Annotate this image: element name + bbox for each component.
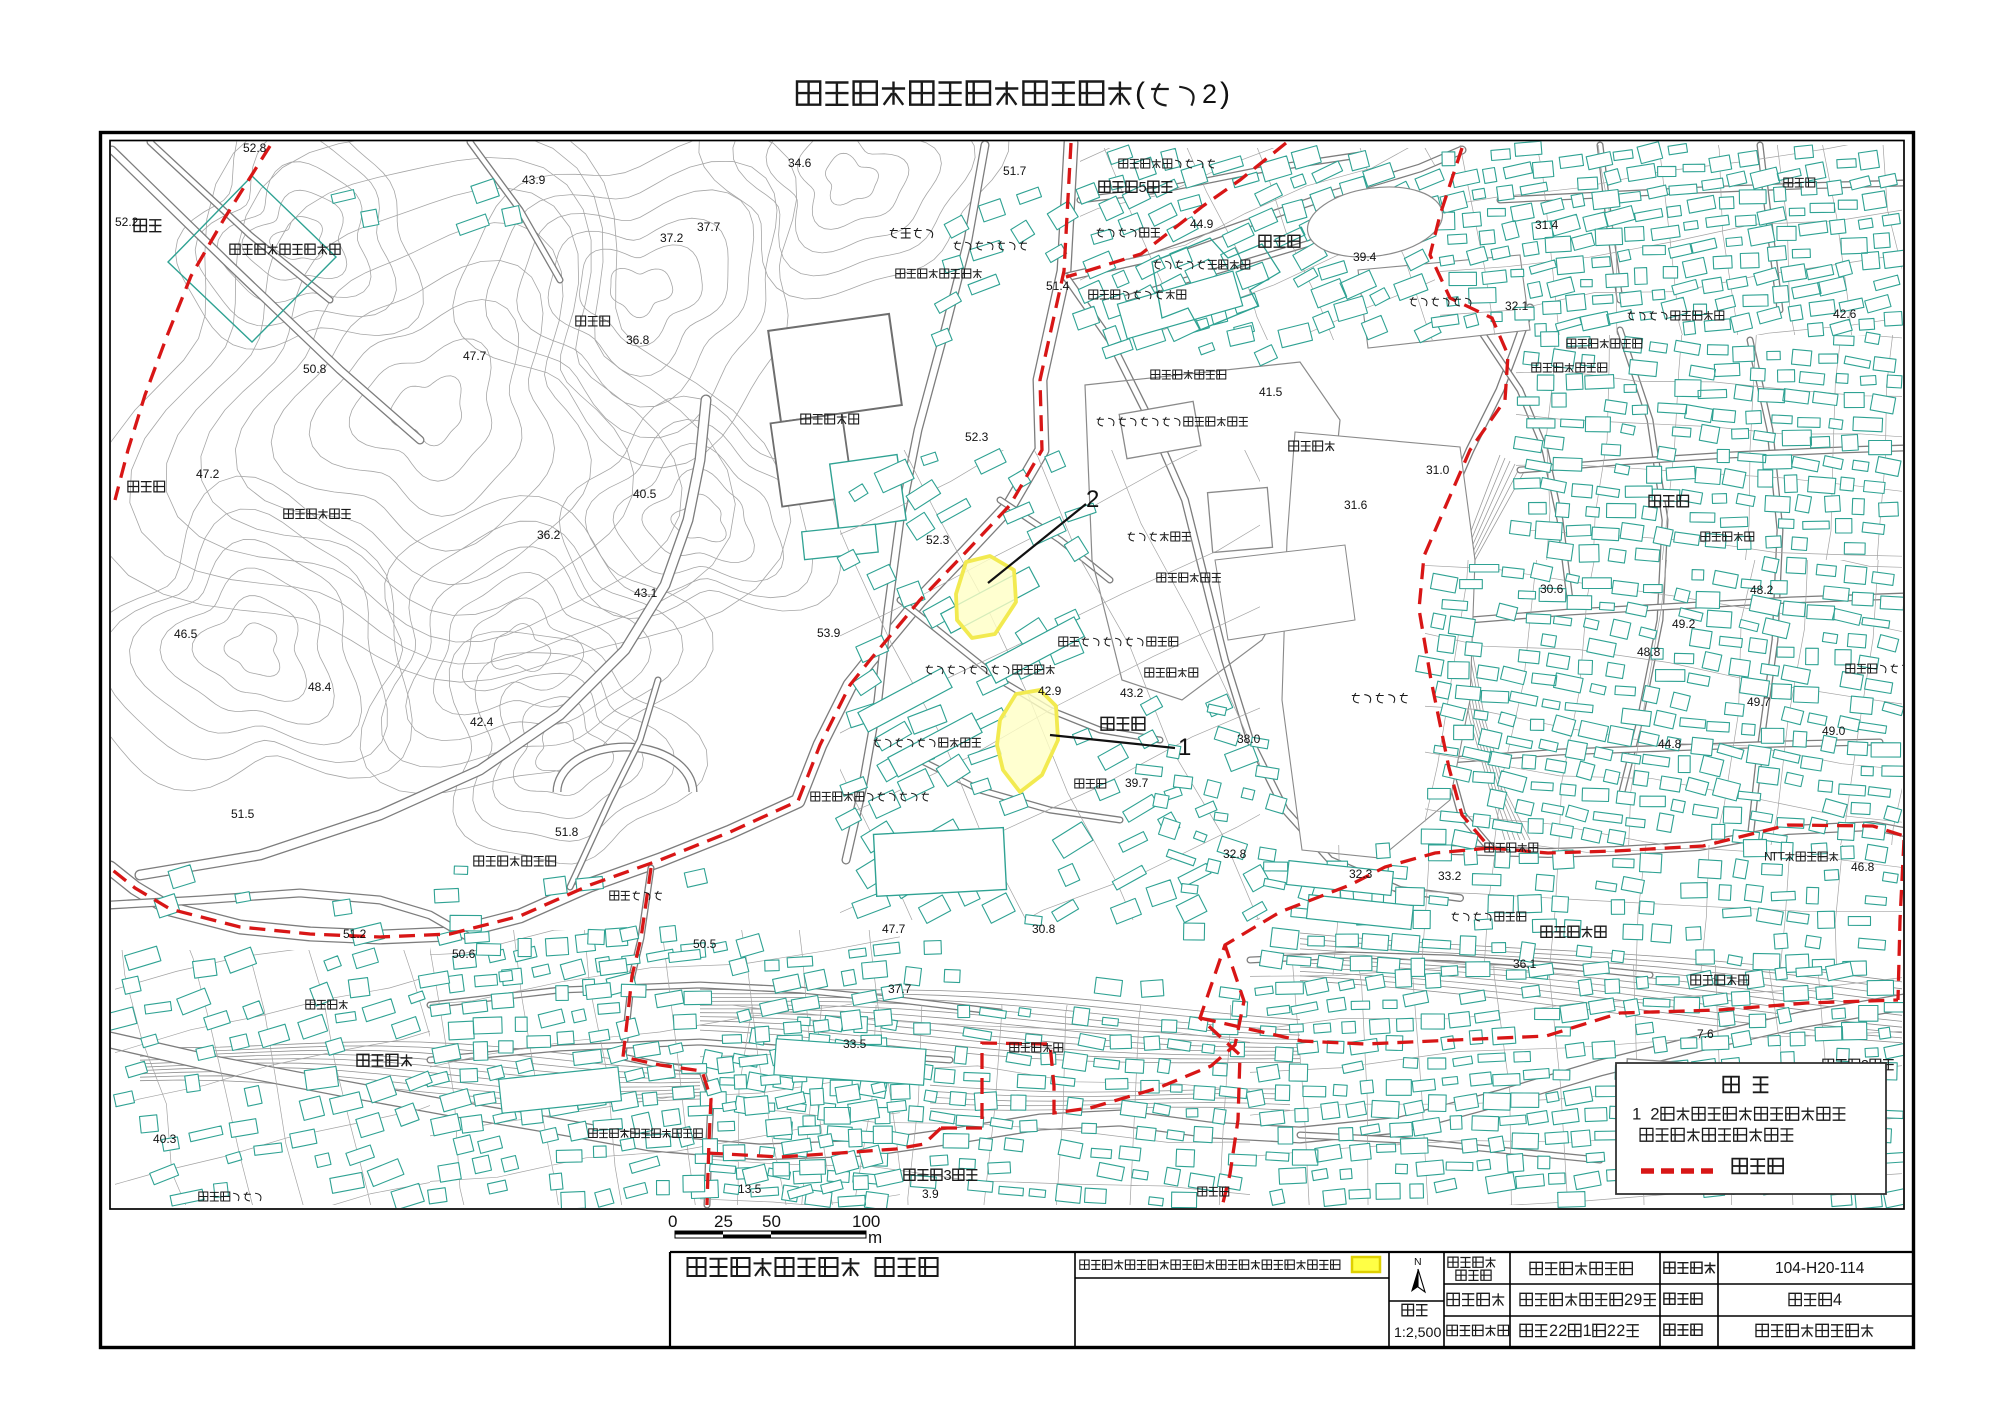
svg-text:49.2: 49.2 — [1672, 617, 1696, 631]
svg-text:3: 3 — [944, 1168, 952, 1184]
svg-text:4: 4 — [1833, 1291, 1842, 1309]
svg-text:25: 25 — [714, 1212, 733, 1231]
svg-text:2: 2 — [1549, 1322, 1558, 1340]
svg-text:1: 1 — [1632, 1105, 1641, 1124]
svg-text:33.5: 33.5 — [843, 1037, 867, 1051]
svg-text:37.7: 37.7 — [888, 982, 912, 996]
svg-text:52.8: 52.8 — [243, 141, 267, 155]
svg-text:44.8: 44.8 — [1658, 737, 1682, 751]
svg-text:41.5: 41.5 — [1259, 385, 1283, 399]
svg-text:38.0: 38.0 — [1237, 732, 1261, 746]
svg-text:36.8: 36.8 — [626, 333, 650, 347]
svg-text:0: 0 — [668, 1212, 677, 1231]
svg-text:50.8: 50.8 — [303, 362, 327, 376]
svg-text:2: 2 — [1650, 1105, 1659, 1124]
svg-text:30.8: 30.8 — [1032, 922, 1056, 936]
svg-text:1: 1 — [1178, 734, 1191, 761]
svg-text:31.4: 31.4 — [1535, 218, 1559, 232]
svg-text:(: ( — [1135, 77, 1145, 110]
svg-text:T: T — [1778, 850, 1785, 864]
svg-text:51.4: 51.4 — [1046, 279, 1070, 293]
svg-text:31.0: 31.0 — [1426, 463, 1450, 477]
svg-text:49.7: 49.7 — [1747, 695, 1771, 709]
svg-text:2: 2 — [1558, 1322, 1567, 1340]
svg-text:43.2: 43.2 — [1120, 686, 1144, 700]
svg-text:2: 2 — [1202, 79, 1217, 109]
svg-text:30.6: 30.6 — [1540, 582, 1564, 596]
svg-text:33.2: 33.2 — [1438, 869, 1462, 883]
svg-text:39.4: 39.4 — [1353, 250, 1377, 264]
svg-text:43.1: 43.1 — [634, 586, 658, 600]
svg-text:51.2: 51.2 — [343, 927, 367, 941]
svg-text:3.9: 3.9 — [922, 1187, 939, 1201]
svg-text:42.4: 42.4 — [470, 715, 494, 729]
svg-text:32.3: 32.3 — [1349, 867, 1373, 881]
svg-text:13.5: 13.5 — [738, 1182, 762, 1196]
svg-text:51.8: 51.8 — [555, 825, 579, 839]
svg-text:53.9: 53.9 — [817, 626, 841, 640]
svg-text:42.6: 42.6 — [1833, 307, 1857, 321]
svg-text:48.8: 48.8 — [1637, 645, 1661, 659]
svg-text:52.3: 52.3 — [965, 430, 989, 444]
svg-text:50.6: 50.6 — [452, 947, 476, 961]
svg-text:40.5: 40.5 — [633, 487, 657, 501]
svg-text:49.0: 49.0 — [1822, 724, 1846, 738]
svg-text:9: 9 — [1633, 1291, 1642, 1309]
svg-text:1:2,500: 1:2,500 — [1394, 1325, 1441, 1341]
svg-text:50.5: 50.5 — [693, 937, 717, 951]
svg-text:39.7: 39.7 — [1125, 776, 1149, 790]
svg-text:43.9: 43.9 — [522, 173, 546, 187]
svg-text:47.2: 47.2 — [196, 467, 220, 481]
svg-text:36.2: 36.2 — [537, 528, 561, 542]
svg-text:1: 1 — [1583, 1322, 1592, 1340]
svg-text:50: 50 — [762, 1212, 781, 1231]
svg-text:32.1: 32.1 — [1505, 299, 1529, 313]
svg-text:44.9: 44.9 — [1190, 217, 1214, 231]
svg-text:40.3: 40.3 — [153, 1132, 177, 1146]
svg-text:104-H20-114: 104-H20-114 — [1775, 1260, 1865, 1277]
svg-text:31.6: 31.6 — [1344, 498, 1368, 512]
svg-text:51.7: 51.7 — [1003, 164, 1027, 178]
svg-text:2: 2 — [1616, 1322, 1625, 1340]
svg-text:52.3: 52.3 — [926, 533, 950, 547]
svg-text:37.2: 37.2 — [660, 231, 684, 245]
svg-text:2: 2 — [1086, 486, 1099, 513]
svg-text:): ) — [1220, 77, 1230, 110]
svg-text:36.1: 36.1 — [1513, 957, 1537, 971]
svg-text:46.5: 46.5 — [174, 627, 198, 641]
svg-text:2: 2 — [1624, 1291, 1633, 1309]
svg-text:N: N — [1414, 1256, 1422, 1268]
svg-text:34.6: 34.6 — [788, 156, 812, 170]
svg-text:m: m — [868, 1228, 882, 1247]
svg-text:46.8: 46.8 — [1851, 860, 1875, 874]
svg-text:48.4: 48.4 — [308, 680, 332, 694]
svg-text:42.9: 42.9 — [1038, 684, 1062, 698]
svg-text:52.2: 52.2 — [115, 215, 139, 229]
svg-text:5: 5 — [1139, 180, 1147, 196]
svg-text:47.7: 47.7 — [463, 349, 487, 363]
svg-text:2: 2 — [1607, 1322, 1616, 1340]
svg-text:32.8: 32.8 — [1223, 847, 1247, 861]
svg-text:47.7: 47.7 — [882, 922, 906, 936]
svg-text:48.2: 48.2 — [1750, 583, 1774, 597]
svg-text:37.7: 37.7 — [697, 220, 721, 234]
svg-text:51.5: 51.5 — [231, 807, 255, 821]
svg-text:7.6: 7.6 — [1697, 1027, 1714, 1041]
